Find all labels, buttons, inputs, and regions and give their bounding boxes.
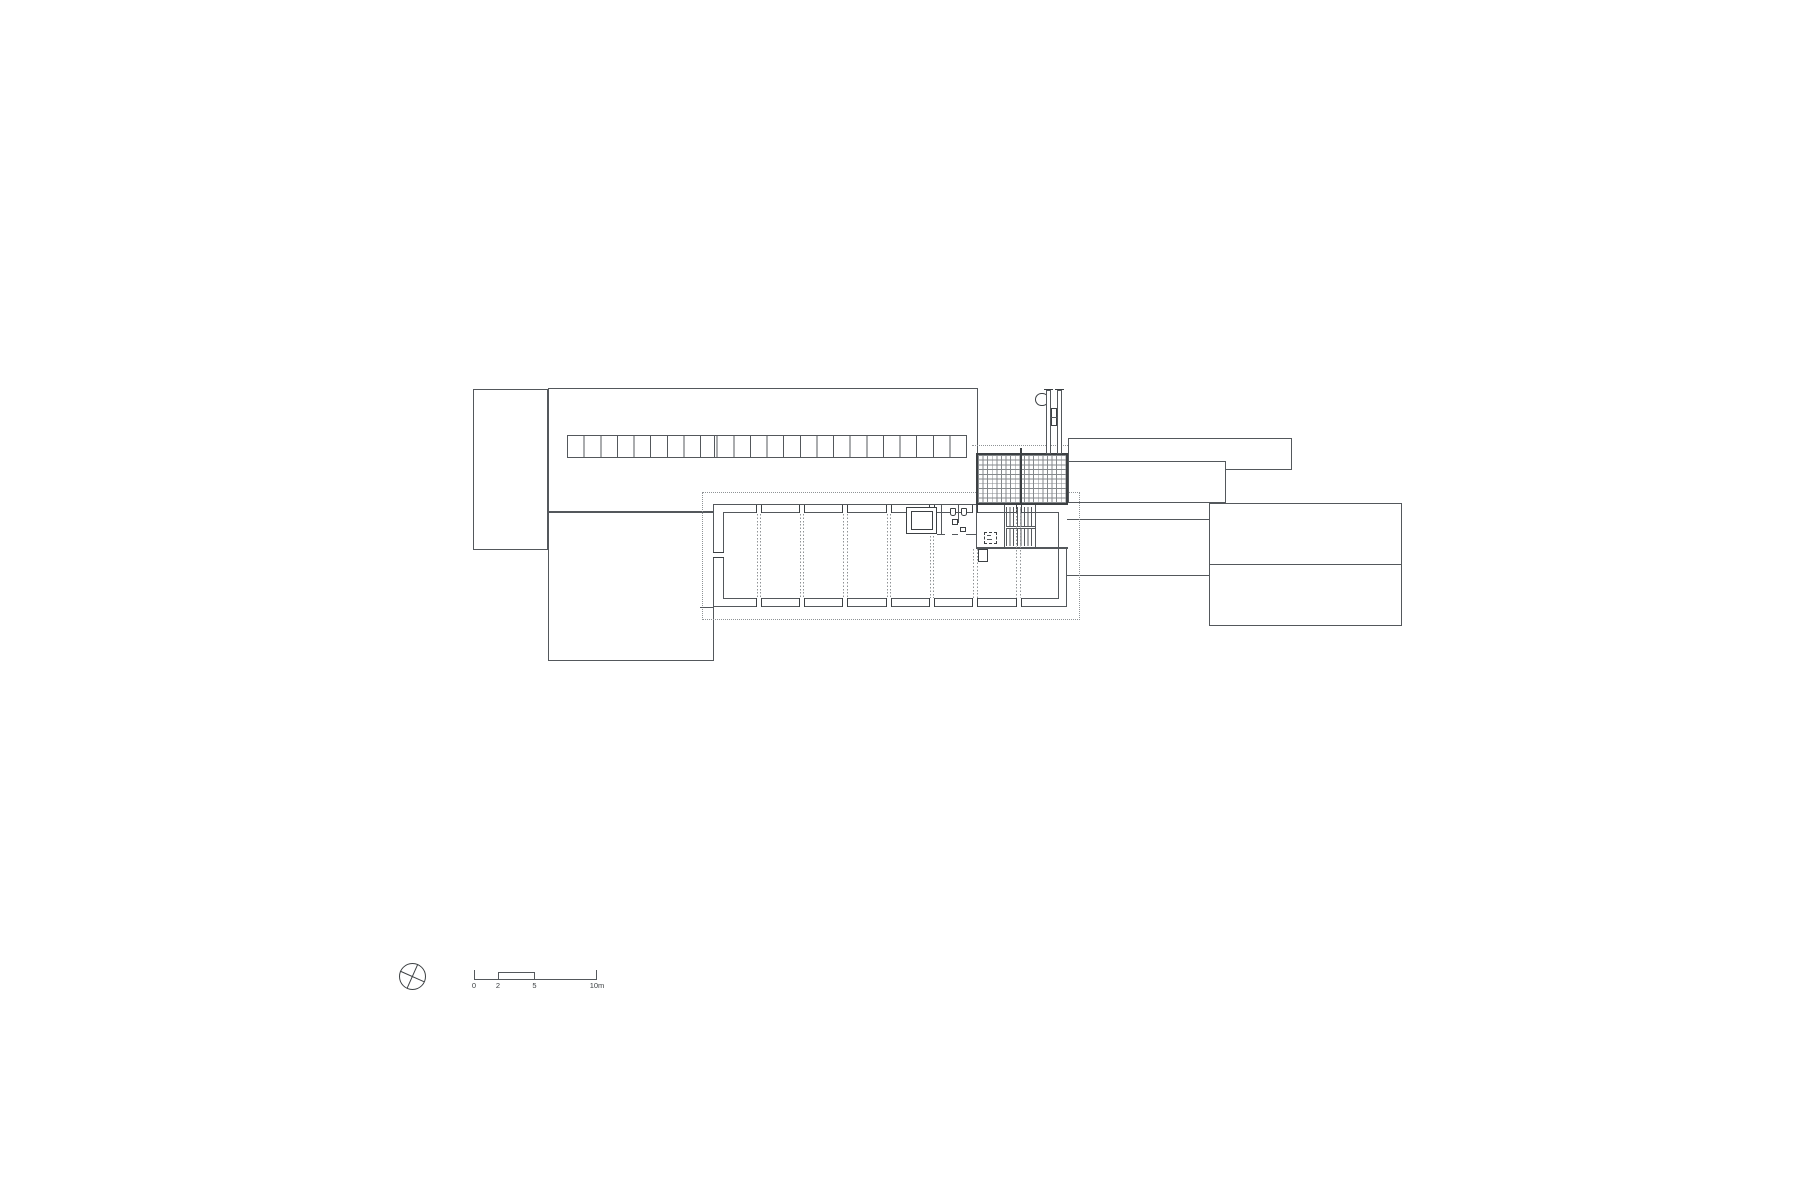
column-axis-dotted (800, 514, 801, 598)
column-axis-dotted (803, 514, 804, 598)
skylight-band (567, 435, 967, 458)
chimney-cap (1044, 389, 1053, 391)
scale-bar-tick (596, 970, 597, 981)
column-axis-dotted (757, 514, 758, 598)
column-mark-west (713, 552, 724, 558)
wall-patch-east (1059, 505, 1067, 547)
wc-fixture (950, 508, 956, 516)
column-axis-dotted (887, 514, 888, 598)
sink-fixture (952, 519, 959, 525)
scale-bar-step (534, 972, 535, 980)
column-axis-dotted (1016, 509, 1017, 598)
column-mark (842, 598, 848, 607)
column-mark (756, 505, 762, 514)
scale-bar-step (498, 972, 499, 980)
chimney-flue-divider (1051, 417, 1057, 418)
scale-label-5: 5 (530, 982, 540, 990)
lobby-west-wall (976, 505, 977, 548)
column-mark (1016, 598, 1022, 607)
sink-fixture (960, 527, 967, 532)
column-axis-dotted (933, 536, 934, 598)
scale-label-2: 2 (493, 982, 503, 990)
column-axis-dotted (977, 549, 978, 598)
column-axis-dotted (843, 514, 844, 598)
column-mark (886, 505, 892, 514)
hall-south-wall-extension (700, 607, 714, 608)
link-east (1068, 461, 1226, 503)
floor-plan-drawing: 02510m (0, 0, 1800, 1200)
scale-bar-baseline (474, 979, 597, 980)
column-axis-dotted (760, 514, 761, 598)
scale-bar-tick (474, 970, 475, 981)
column-mark (842, 505, 848, 514)
column-mark (799, 598, 805, 607)
column-mark (756, 598, 762, 607)
annex-north-west (473, 389, 548, 550)
chimney-rail-east (1057, 390, 1063, 454)
corridor-south-edge (1067, 575, 1209, 576)
shaft-symbol-mark (987, 535, 991, 536)
corridor-north-edge (1067, 519, 1209, 520)
column-axis-dotted (890, 514, 891, 598)
roof-glazing-grid (976, 453, 1068, 505)
building-east-divider (1209, 564, 1402, 565)
scale-label-0: 0 (469, 982, 479, 990)
column-mark (799, 505, 805, 514)
column-mark (972, 598, 978, 607)
toilet-south-wall (937, 534, 945, 535)
toilet-south-wall (952, 534, 959, 535)
skylight-divider (714, 436, 715, 458)
column-axis-dotted (1020, 509, 1021, 598)
wall-stub (978, 549, 989, 562)
column-mark (929, 598, 935, 607)
scale-label-10m: 10m (586, 982, 608, 990)
stair-wall-east (1035, 505, 1036, 547)
column-mark (886, 598, 892, 607)
column-axis-dotted (930, 536, 931, 598)
wc-fixture (961, 508, 967, 516)
scale-bar-step-top (498, 972, 535, 973)
chimney-cap (1055, 389, 1065, 391)
column-axis-dotted (973, 549, 974, 598)
elevator-shaft-inner (911, 511, 933, 530)
roof-glazing-mullion (1020, 448, 1022, 505)
toilet-south-wall (966, 534, 977, 535)
wing-south-west (548, 512, 714, 661)
roof-dashed-edge (972, 445, 1068, 446)
wall-elevator-toilet (941, 505, 942, 534)
column-axis-dotted (847, 514, 848, 598)
service-south-wall (976, 547, 1068, 549)
shaft-symbol-mark (987, 539, 992, 540)
